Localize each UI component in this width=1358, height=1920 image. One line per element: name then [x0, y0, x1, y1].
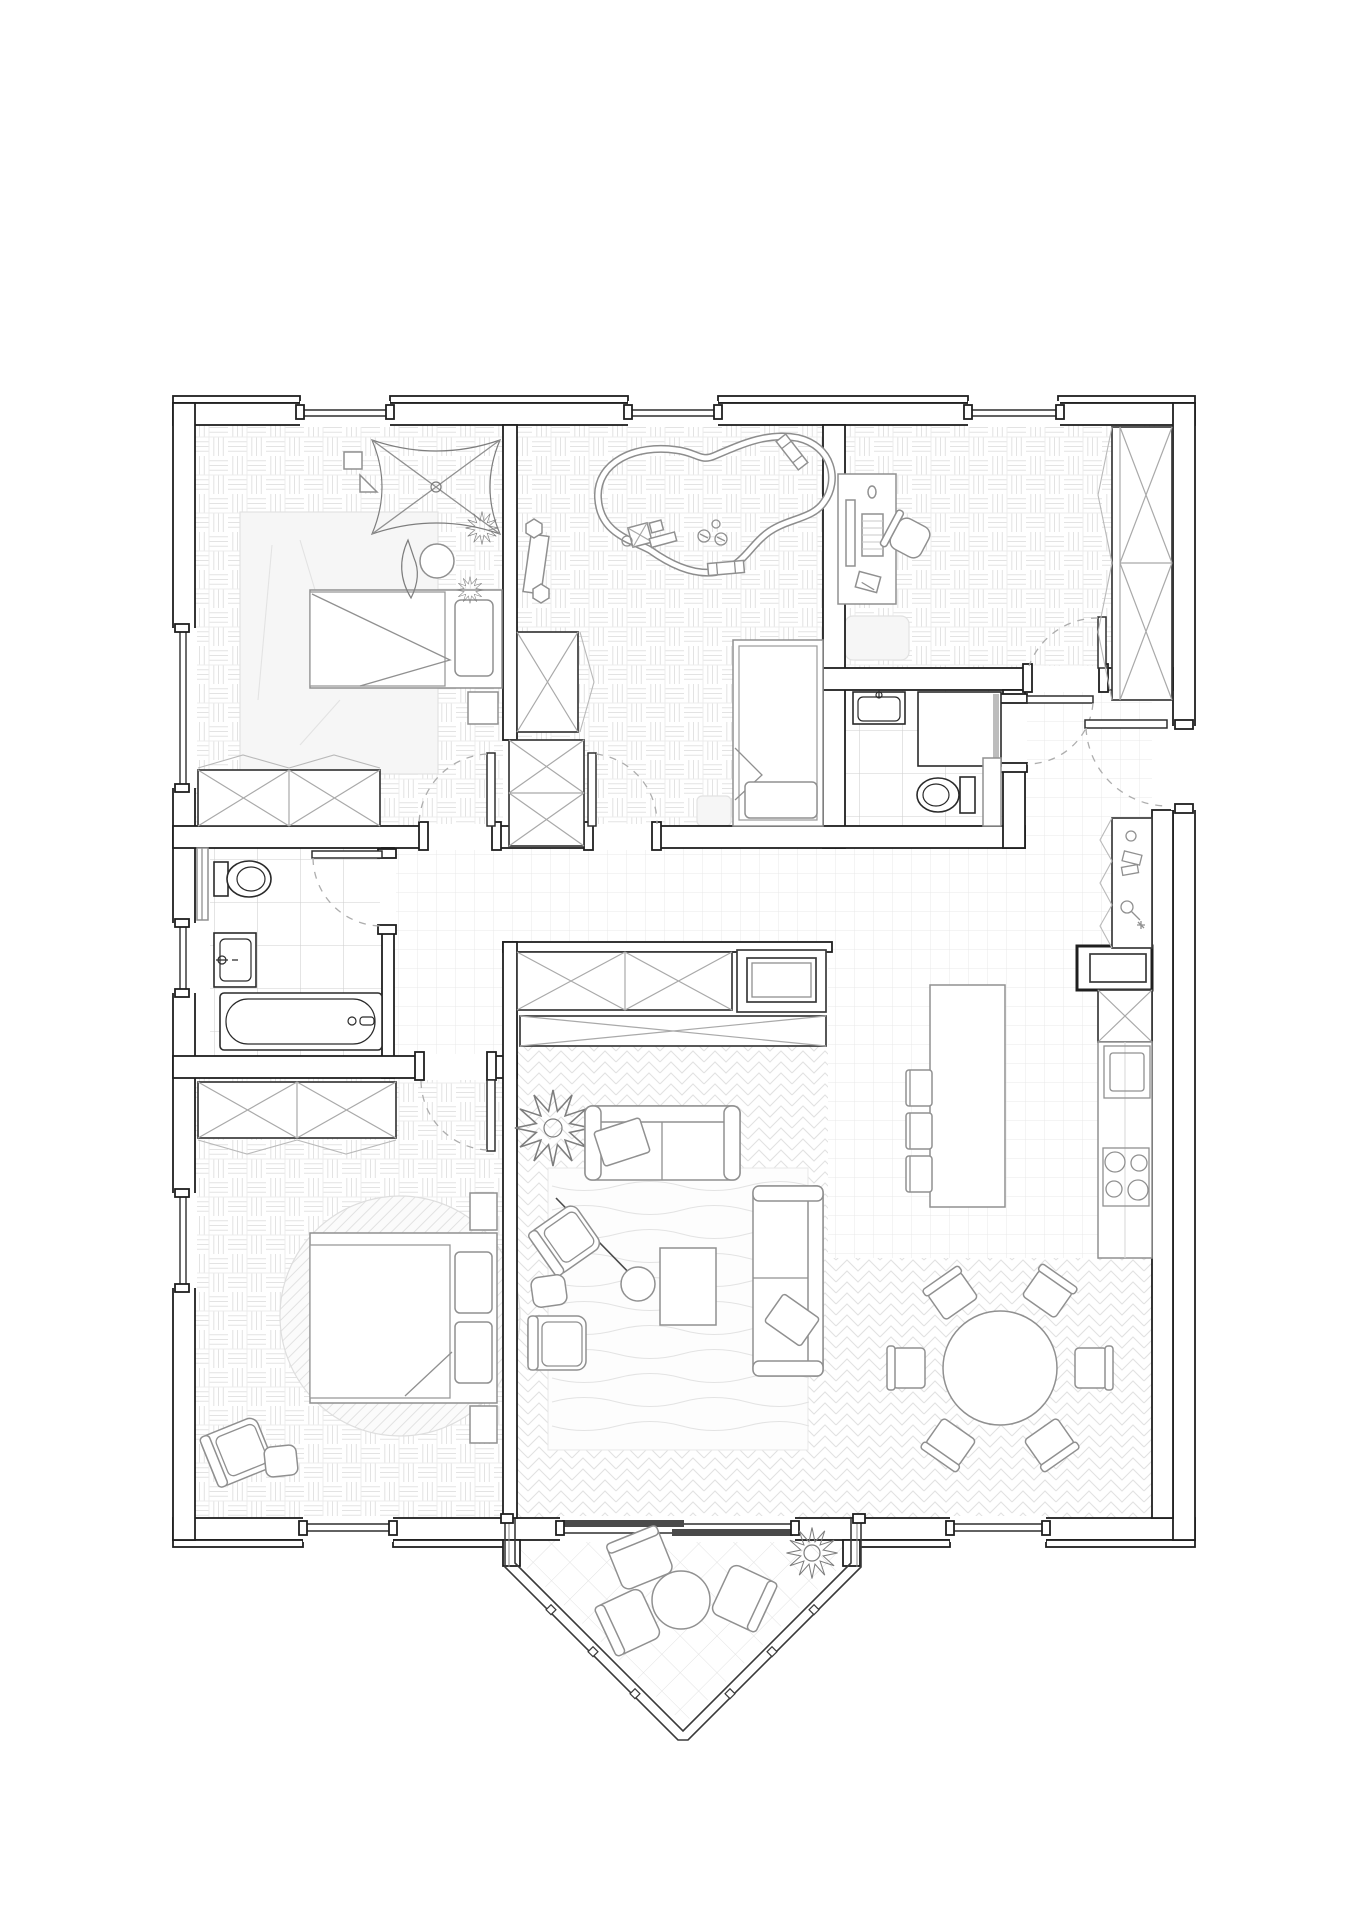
living-ottoman: [530, 1274, 568, 1308]
bed-single-1: [310, 590, 502, 688]
nightstand-south: [470, 1406, 497, 1443]
window-bedroom2-left: [171, 1189, 197, 1292]
nightstand-north: [470, 1193, 497, 1230]
tall-cabinet: [1098, 990, 1152, 1042]
hex-stool-2: [533, 584, 549, 603]
television: [747, 958, 816, 1002]
hex-stool-1: [526, 519, 542, 538]
washbasin-main: [214, 933, 256, 987]
wall-bedroom1-kids: [503, 425, 517, 740]
sofa-chaise: [753, 1186, 823, 1376]
mouse: [868, 486, 876, 498]
floor-plan-page: Apartment floor plan — top view architec…: [0, 0, 1358, 1920]
pillow-1: [455, 1252, 492, 1313]
window-office-top: [964, 401, 1064, 427]
office-rug: [845, 616, 909, 660]
dining-chair-4: [1075, 1346, 1113, 1390]
hall-closet: [509, 740, 584, 846]
armchair-2: [528, 1316, 586, 1370]
bedroom2-ottoman: [264, 1444, 299, 1477]
hallway-floor-center: [503, 848, 828, 944]
low-console: [520, 1016, 826, 1046]
sofa-three-seat: [585, 1106, 740, 1180]
bath-cabinet: [983, 758, 1001, 826]
washbasin-small: [853, 690, 905, 724]
dining-table: [943, 1311, 1057, 1425]
tv-unit: [737, 950, 826, 1012]
dining-chair-3: [887, 1346, 925, 1390]
window-bathroom-left: [171, 919, 197, 997]
refrigerator: [1077, 946, 1152, 990]
bed-bench: [468, 692, 498, 724]
toilet-small: [917, 777, 975, 813]
monitor: [846, 500, 855, 566]
kids-bed: [733, 640, 823, 826]
hallway-floor-west: [394, 848, 503, 1056]
window-bedroom2-bottom: [299, 1516, 397, 1542]
pillow: [455, 600, 493, 676]
window-kids-top: [624, 401, 722, 427]
wall-right-inner: [1152, 810, 1173, 1518]
shower: [918, 692, 1001, 766]
wall-frame: [344, 452, 362, 469]
floor-cushion: [420, 544, 454, 578]
wall-living-west: [503, 942, 517, 1518]
window-bedroom1-top: [296, 401, 394, 427]
counter: [1098, 1042, 1152, 1258]
bathtub: [220, 993, 382, 1050]
sideboard-top: [517, 952, 732, 1010]
bar-stools: [906, 1070, 932, 1192]
coffee-table: [660, 1248, 716, 1325]
sliding-door-balcony: [556, 1516, 799, 1542]
balcony-table: [652, 1571, 710, 1629]
kids-pillow: [745, 782, 817, 818]
window-bedroom1-left: [171, 624, 197, 792]
pillow-2: [455, 1322, 492, 1383]
toilet-main: [214, 861, 271, 897]
wall-right: [1173, 403, 1195, 1540]
double-bed: [310, 1233, 497, 1403]
kitchen-island: [930, 985, 1005, 1207]
floor-plan-drawing: Apartment floor plan — top view architec…: [0, 0, 1358, 1920]
kids-small-rug: [697, 796, 731, 826]
window-dining-bottom: [946, 1516, 1050, 1542]
